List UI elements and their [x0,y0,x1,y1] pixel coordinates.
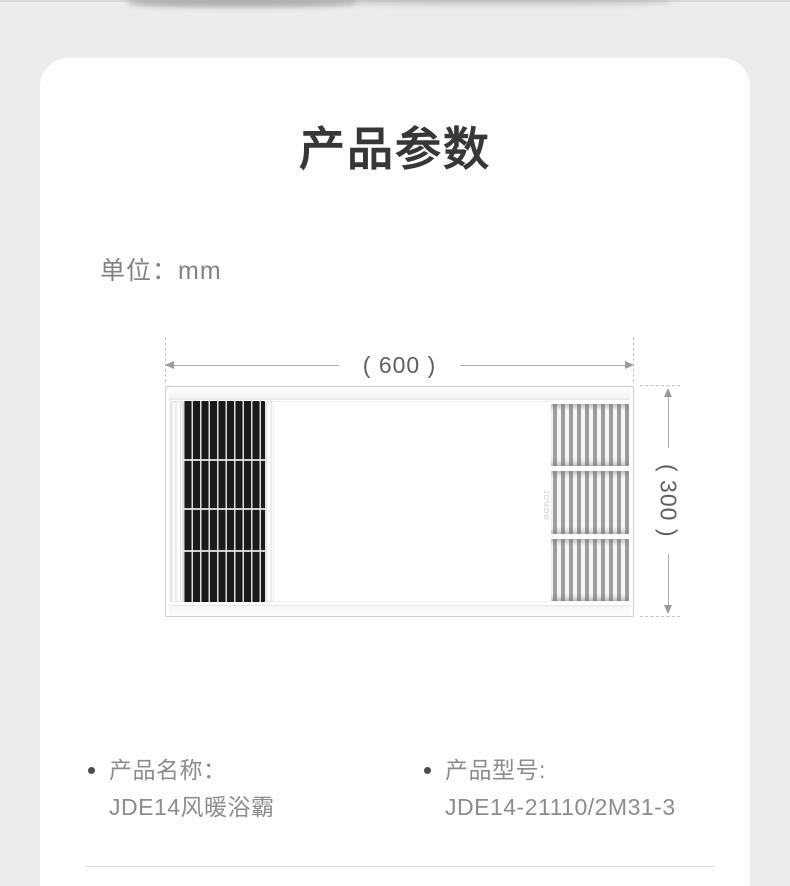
housing-bottom-band [169,605,630,616]
ventilation-grille [551,404,629,601]
width-dimension: ( 600 ) [165,350,634,380]
page-title: 产品参数 [40,113,750,179]
heater-grille [170,401,274,602]
grille-divider [183,508,265,510]
dimension-line [668,397,669,448]
height-dimension: ( 300 ) [656,388,680,614]
arrow-down-icon [664,605,672,614]
vent-section [551,404,629,466]
product-name-item: 产品名称： JDE14风暖浴霸 [88,752,275,826]
bullet-icon [424,767,431,774]
vent-section [551,471,629,533]
product-parameters-card: 产品参数 单位：mm ( 600 ) [40,58,750,886]
top-image-artifact [0,0,790,2]
section-divider [85,866,715,867]
product-model-item: 产品型号: JDE14-21110/2M31-3 [424,752,676,826]
arrow-left-icon [165,361,174,369]
product-model-value: JDE14-21110/2M31-3 [445,789,676,826]
product-parameters-page: 产品参数 单位：mm ( 600 ) [0,0,790,886]
extension-line-bottom [640,616,680,617]
width-dimension-label: ( 600 ) [339,352,460,379]
height-dimension-label: ( 300 ) [655,448,682,553]
vent-section [551,539,629,601]
arrow-right-icon [625,361,634,369]
extension-line-top [640,385,680,386]
grille-slats [183,401,265,602]
arrow-up-icon [664,388,672,397]
grille-divider [183,459,265,461]
product-model-text: 产品型号: JDE14-21110/2M31-3 [445,752,676,826]
unit-label: 单位：mm [100,251,222,287]
product-name-value: JDE14风暖浴霸 [109,789,275,826]
product-model-label: 产品型号: [445,752,676,789]
dimension-line [460,365,625,366]
grille-frame [170,401,183,602]
bullet-icon [88,767,95,774]
dimension-line [174,365,339,366]
light-panel: JOMOO [273,401,553,602]
bath-heater-drawing: JOMOO [165,386,634,617]
product-name-label: 产品名称： [109,752,275,789]
housing-top-band [169,387,630,400]
dimension-line [668,554,669,605]
grille-divider [183,550,265,552]
product-name-text: 产品名称： JDE14风暖浴霸 [109,752,275,826]
brand-logo: JOMOO [542,490,549,521]
